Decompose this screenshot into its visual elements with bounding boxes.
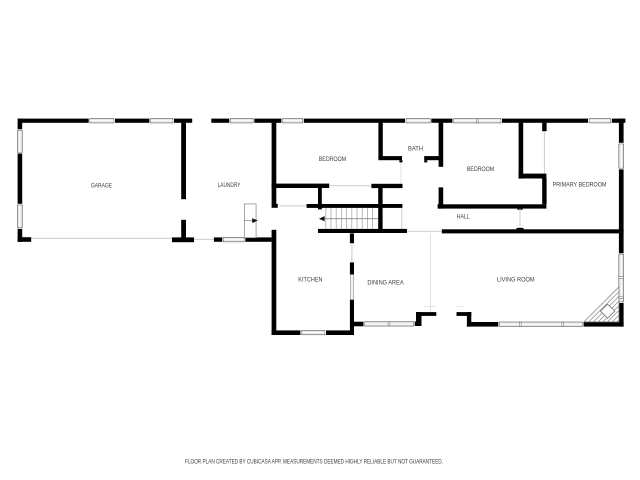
svg-text:LIVING ROOM: LIVING ROOM [497,277,535,283]
svg-text:KITCHEN: KITCHEN [298,277,322,283]
svg-text:HALL: HALL [457,214,470,220]
svg-text:GARAGE: GARAGE [91,183,112,189]
svg-text:PRIMARY BEDROOM: PRIMARY BEDROOM [553,182,607,188]
svg-text:LAUNDRY: LAUNDRY [218,183,241,189]
svg-text:BEDROOM: BEDROOM [467,167,495,173]
svg-text:BATH: BATH [408,147,423,153]
svg-text:BEDROOM: BEDROOM [319,157,347,163]
svg-text:FLOOR PLAN CREATED BY CUBICASA: FLOOR PLAN CREATED BY CUBICASA APP. MEAS… [185,458,443,465]
svg-text:DINING AREA: DINING AREA [367,280,403,286]
